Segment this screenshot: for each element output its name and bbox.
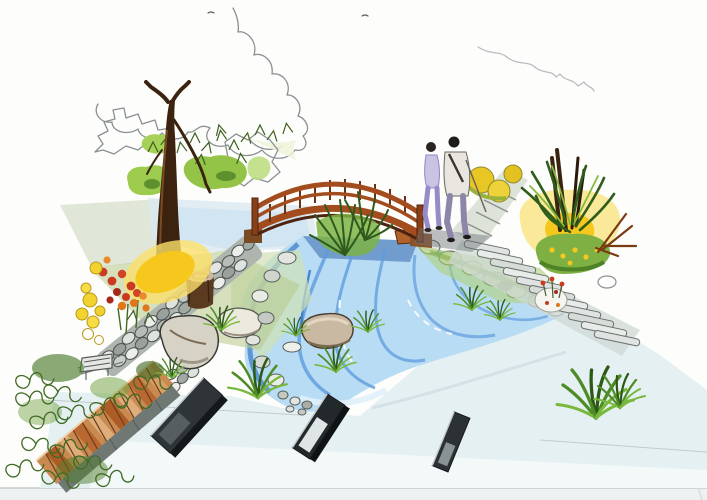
white-stone: [283, 342, 301, 352]
woman-top: [425, 155, 440, 188]
man-shoe: [463, 235, 471, 239]
sketch-canvas: [0, 0, 707, 500]
foliage-shade: [144, 179, 160, 189]
bridge-post-left: [252, 198, 258, 235]
woman-shoe: [436, 226, 443, 230]
foliage-shade: [216, 171, 236, 181]
man-top: [444, 152, 470, 196]
woman-head: [426, 142, 436, 152]
sketch-page: [0, 0, 707, 500]
paper-edge-strip: [0, 488, 707, 500]
woman-shoe: [425, 228, 432, 232]
man-head: [449, 137, 460, 148]
white-bush: [535, 288, 567, 312]
man-shoe: [447, 238, 455, 242]
